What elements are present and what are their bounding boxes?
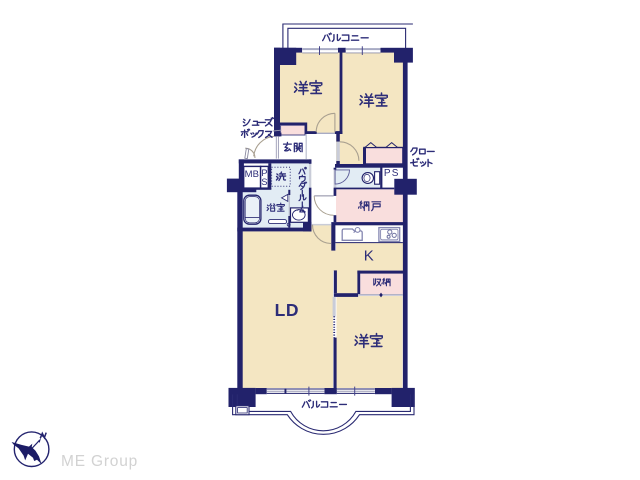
svg-text:K: K [364,247,374,264]
svg-text:PS: PS [384,168,400,179]
svg-text:MB: MB [245,169,259,180]
svg-text:ME Group: ME Group [61,453,138,470]
svg-text:S: S [261,177,267,187]
svg-text:LD: LD [275,300,299,320]
